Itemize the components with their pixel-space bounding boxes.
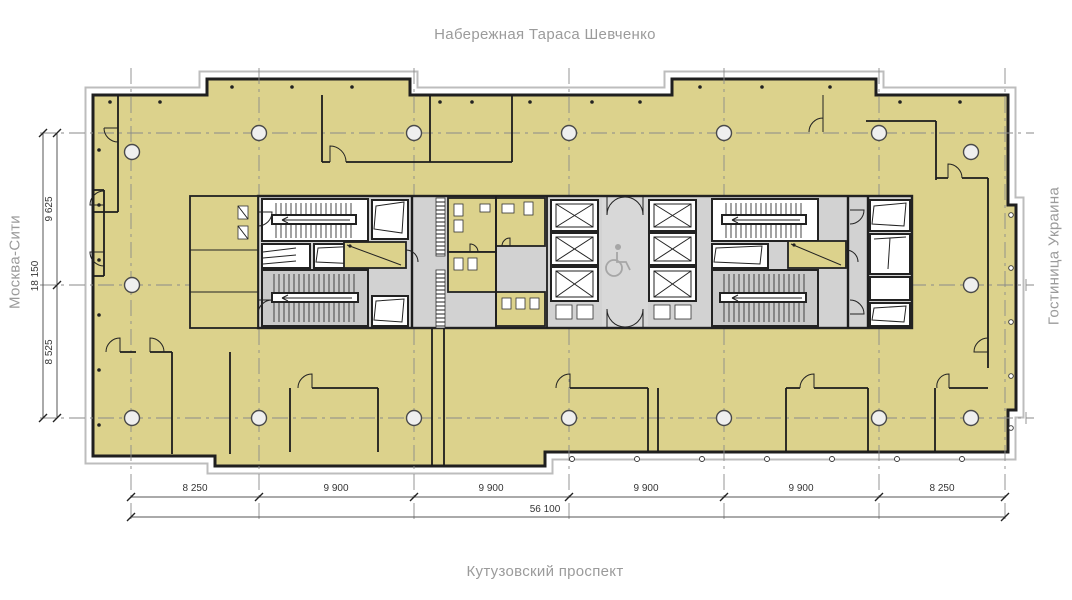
toilet [454,220,463,232]
sink [530,298,539,309]
column [717,411,732,426]
hinge-dot [348,244,351,247]
column [964,411,979,426]
tech-room-right [788,241,846,268]
toilet [468,258,477,270]
column [252,411,267,426]
wheelchair-head [615,244,621,250]
counterweight [675,305,691,319]
dim-label-left-1: 8 525 [44,339,55,364]
dim-label-left-0: 9 625 [44,196,55,221]
dim-label-bottom-3: 9 900 [633,483,658,494]
counterweight [556,305,572,319]
dimensions-left: 9 625 8 525 18 150 [30,129,61,422]
counterweight [654,305,670,319]
column [717,126,732,141]
column [872,411,887,426]
column [125,278,140,293]
dim-label-bottom-2: 9 900 [478,483,503,494]
dim-label-bottom-0: 8 250 [182,483,207,494]
toilet [516,298,525,309]
dim-line [131,497,1005,517]
column [562,411,577,426]
counterweight [577,305,593,319]
elevator-bank-right [649,200,696,319]
sink [480,204,490,212]
toilet [454,258,463,270]
column [252,126,267,141]
vent-shaft [436,198,445,256]
hinge-dot [792,243,795,246]
column [125,145,140,160]
toilet [454,204,463,216]
room [870,277,910,300]
toilet [524,202,533,215]
tech-room-left [344,242,406,268]
column [562,126,577,141]
sink [502,204,514,213]
dim-label-bottom-total: 56 100 [530,504,561,515]
floor-plan-canvas: Набережная Тараса Шевченко Кутузовский п… [0,0,1072,600]
dim-label-bottom-5: 8 250 [929,483,954,494]
dim-line [43,133,57,418]
elevator-bank-left [551,200,598,319]
column [964,145,979,160]
plan-drawing: 9 625 8 525 18 150 8 250 9 900 9 900 9 9… [0,0,1072,600]
dim-label-bottom-4: 9 900 [788,483,813,494]
column [964,278,979,293]
column [872,126,887,141]
column [407,126,422,141]
toilet [502,298,511,309]
vent-shaft [436,270,445,328]
column [407,411,422,426]
dim-ticks [39,129,61,422]
column [125,411,140,426]
vestibule-left [190,196,258,328]
dim-label-left-total: 18 150 [30,260,41,291]
dim-label-bottom-1: 9 900 [323,483,348,494]
service-core [190,196,912,328]
